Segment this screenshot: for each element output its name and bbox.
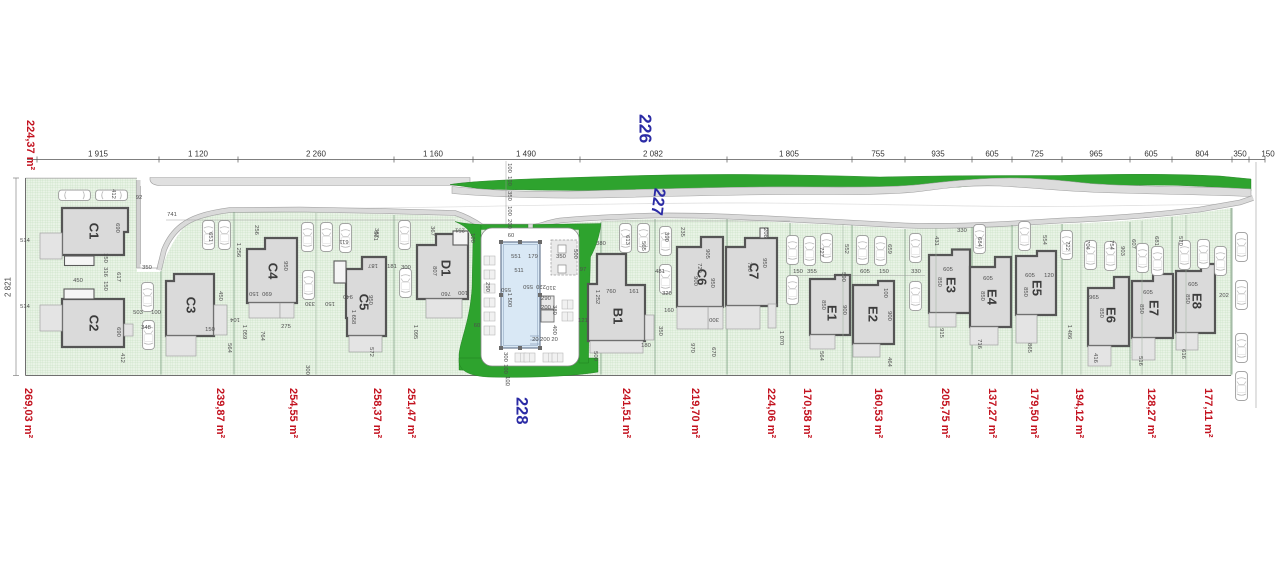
svg-text:570: 570 bbox=[1177, 236, 1183, 246]
svg-text:100: 100 bbox=[506, 206, 512, 216]
svg-text:552: 552 bbox=[843, 244, 849, 254]
svg-text:224,37 m²: 224,37 m² bbox=[24, 120, 36, 170]
svg-text:804: 804 bbox=[1195, 150, 1209, 159]
svg-text:1 120: 1 120 bbox=[188, 150, 209, 159]
svg-text:590: 590 bbox=[840, 272, 846, 282]
svg-text:1 490: 1 490 bbox=[516, 150, 537, 159]
svg-text:205,75 m²: 205,75 m² bbox=[939, 388, 951, 438]
svg-text:1 486: 1 486 bbox=[1066, 325, 1072, 340]
svg-text:704: 704 bbox=[1084, 240, 1090, 250]
svg-text:514: 514 bbox=[20, 238, 30, 244]
svg-text:387: 387 bbox=[373, 228, 379, 238]
svg-text:605: 605 bbox=[985, 150, 999, 159]
svg-text:2 260: 2 260 bbox=[306, 150, 327, 159]
svg-text:300: 300 bbox=[304, 365, 310, 375]
svg-text:C1: C1 bbox=[87, 223, 102, 240]
svg-text:E6: E6 bbox=[1104, 307, 1119, 323]
svg-text:100: 100 bbox=[506, 176, 512, 186]
svg-text:511: 511 bbox=[514, 268, 523, 274]
svg-text:350: 350 bbox=[657, 326, 663, 336]
svg-text:670: 670 bbox=[710, 347, 716, 357]
svg-text:150: 150 bbox=[879, 269, 889, 275]
svg-text:380: 380 bbox=[551, 305, 557, 315]
svg-text:2 082: 2 082 bbox=[643, 150, 664, 159]
svg-text:690: 690 bbox=[114, 223, 120, 233]
svg-text:320: 320 bbox=[662, 291, 672, 297]
svg-text:500: 500 bbox=[592, 351, 598, 361]
svg-text:564: 564 bbox=[818, 351, 824, 361]
svg-text:400: 400 bbox=[551, 325, 557, 335]
svg-text:900: 900 bbox=[841, 305, 847, 315]
svg-text:150: 150 bbox=[102, 253, 108, 263]
svg-text:450: 450 bbox=[217, 291, 223, 301]
svg-text:228: 228 bbox=[513, 397, 531, 425]
svg-text:605: 605 bbox=[860, 269, 870, 275]
svg-text:720: 720 bbox=[746, 262, 752, 272]
svg-text:450: 450 bbox=[73, 278, 83, 284]
svg-text:121: 121 bbox=[578, 318, 588, 324]
svg-text:137,27 m²: 137,27 m² bbox=[986, 388, 998, 438]
svg-text:1 915: 1 915 bbox=[88, 150, 109, 159]
svg-text:850: 850 bbox=[1138, 304, 1144, 314]
svg-text:120: 120 bbox=[1044, 273, 1054, 279]
svg-text:565: 565 bbox=[640, 241, 646, 251]
svg-text:764: 764 bbox=[259, 331, 265, 341]
svg-text:514: 514 bbox=[20, 304, 30, 310]
svg-text:605: 605 bbox=[1144, 150, 1158, 159]
svg-text:190: 190 bbox=[469, 233, 475, 243]
svg-text:554: 554 bbox=[1041, 235, 1047, 245]
svg-text:181: 181 bbox=[387, 264, 397, 270]
svg-text:180: 180 bbox=[641, 343, 651, 349]
svg-text:290: 290 bbox=[484, 282, 490, 292]
svg-text:300: 300 bbox=[401, 265, 411, 271]
svg-text:235: 235 bbox=[679, 227, 685, 237]
svg-text:104: 104 bbox=[229, 316, 239, 322]
svg-text:607: 607 bbox=[1130, 239, 1136, 249]
svg-text:367: 367 bbox=[429, 226, 435, 236]
svg-text:970: 970 bbox=[689, 343, 695, 353]
svg-text:300: 300 bbox=[709, 316, 719, 322]
svg-text:850: 850 bbox=[936, 277, 942, 287]
svg-text:355: 355 bbox=[807, 269, 817, 275]
svg-text:256: 256 bbox=[253, 225, 259, 235]
svg-text:100: 100 bbox=[458, 289, 468, 295]
svg-text:258,37 m²: 258,37 m² bbox=[371, 388, 383, 438]
svg-text:251,47 m²: 251,47 m² bbox=[405, 388, 417, 438]
svg-text:290: 290 bbox=[541, 296, 551, 302]
svg-text:900: 900 bbox=[886, 311, 892, 321]
svg-text:B1: B1 bbox=[611, 308, 626, 325]
svg-text:C3: C3 bbox=[184, 297, 199, 314]
svg-text:727: 727 bbox=[818, 247, 824, 257]
svg-text:100: 100 bbox=[151, 310, 161, 316]
svg-text:605: 605 bbox=[1025, 273, 1035, 279]
svg-text:92: 92 bbox=[136, 195, 142, 201]
svg-text:100: 100 bbox=[504, 376, 510, 386]
svg-text:E3: E3 bbox=[944, 277, 959, 293]
svg-text:350: 350 bbox=[142, 265, 152, 271]
svg-text:C2: C2 bbox=[87, 315, 102, 332]
svg-text:416: 416 bbox=[1092, 353, 1098, 363]
svg-text:716: 716 bbox=[976, 339, 982, 349]
svg-text:2 821: 2 821 bbox=[4, 276, 13, 297]
svg-text:100: 100 bbox=[882, 288, 888, 298]
svg-text:220: 220 bbox=[536, 283, 546, 289]
svg-text:1 070: 1 070 bbox=[778, 331, 784, 346]
svg-text:611: 611 bbox=[339, 238, 348, 244]
svg-text:275: 275 bbox=[281, 324, 291, 330]
svg-text:965: 965 bbox=[1089, 150, 1103, 159]
svg-text:224,06 m²: 224,06 m² bbox=[765, 388, 777, 438]
svg-text:950: 950 bbox=[761, 258, 767, 268]
svg-text:150: 150 bbox=[102, 281, 108, 291]
svg-text:605: 605 bbox=[1143, 290, 1153, 296]
svg-text:950: 950 bbox=[709, 278, 715, 288]
svg-text:310: 310 bbox=[546, 284, 556, 290]
svg-text:330: 330 bbox=[305, 300, 315, 306]
svg-text:1 500: 1 500 bbox=[506, 293, 512, 308]
svg-text:850: 850 bbox=[1098, 308, 1104, 318]
svg-text:350: 350 bbox=[1233, 150, 1247, 159]
svg-text:965: 965 bbox=[1089, 295, 1099, 301]
svg-text:605: 605 bbox=[943, 267, 953, 273]
svg-text:330: 330 bbox=[911, 269, 921, 275]
svg-text:E8: E8 bbox=[1190, 293, 1205, 309]
svg-text:350: 350 bbox=[506, 191, 512, 201]
svg-text:226: 226 bbox=[635, 114, 655, 143]
svg-text:E4: E4 bbox=[985, 289, 1000, 306]
svg-text:850: 850 bbox=[1022, 287, 1028, 297]
svg-text:500: 500 bbox=[572, 249, 578, 259]
svg-text:616: 616 bbox=[1180, 349, 1186, 359]
svg-text:E7: E7 bbox=[1147, 300, 1162, 316]
svg-text:390: 390 bbox=[663, 232, 669, 242]
svg-text:1 256: 1 256 bbox=[235, 243, 241, 258]
svg-text:807: 807 bbox=[431, 266, 437, 276]
svg-text:150: 150 bbox=[793, 269, 803, 275]
svg-text:D1: D1 bbox=[439, 260, 454, 277]
svg-text:E2: E2 bbox=[866, 306, 881, 322]
svg-text:950: 950 bbox=[367, 295, 373, 305]
svg-text:160,53 m²: 160,53 m² bbox=[872, 388, 884, 438]
svg-text:179,50 m²: 179,50 m² bbox=[1028, 388, 1040, 438]
svg-text:659: 659 bbox=[886, 244, 892, 254]
svg-text:905: 905 bbox=[704, 249, 710, 259]
svg-text:202: 202 bbox=[1219, 293, 1229, 299]
svg-text:170,58 m²: 170,58 m² bbox=[801, 388, 813, 438]
svg-text:251: 251 bbox=[455, 227, 465, 233]
svg-text:551: 551 bbox=[511, 254, 521, 260]
svg-text:100: 100 bbox=[502, 364, 508, 374]
svg-text:760: 760 bbox=[441, 290, 451, 296]
svg-text:617: 617 bbox=[115, 272, 121, 282]
svg-text:97: 97 bbox=[580, 267, 586, 273]
svg-text:316: 316 bbox=[102, 267, 108, 277]
svg-text:572: 572 bbox=[368, 347, 374, 357]
svg-text:350: 350 bbox=[556, 254, 566, 260]
svg-text:300: 300 bbox=[502, 352, 508, 362]
svg-text:1 160: 1 160 bbox=[423, 150, 444, 159]
svg-text:755: 755 bbox=[871, 150, 885, 159]
svg-text:380: 380 bbox=[596, 241, 606, 247]
svg-text:850: 850 bbox=[979, 291, 985, 301]
svg-text:690: 690 bbox=[115, 327, 121, 337]
svg-text:150: 150 bbox=[325, 300, 335, 306]
svg-text:850: 850 bbox=[1184, 294, 1190, 304]
svg-text:865: 865 bbox=[1026, 343, 1032, 353]
svg-text:412: 412 bbox=[110, 189, 116, 199]
svg-text:60: 60 bbox=[474, 323, 480, 329]
svg-text:208: 208 bbox=[762, 228, 768, 238]
svg-text:935: 935 bbox=[931, 150, 945, 159]
svg-text:725: 725 bbox=[1030, 150, 1044, 159]
svg-text:940: 940 bbox=[343, 293, 353, 299]
svg-text:60: 60 bbox=[508, 233, 514, 239]
svg-text:741: 741 bbox=[167, 212, 177, 218]
svg-text:1 095: 1 095 bbox=[412, 325, 418, 340]
svg-text:239,87 m²: 239,87 m² bbox=[214, 388, 226, 438]
svg-text:684: 684 bbox=[976, 237, 982, 247]
svg-text:150: 150 bbox=[249, 290, 259, 296]
svg-text:1 658: 1 658 bbox=[350, 310, 356, 325]
svg-text:431: 431 bbox=[933, 236, 939, 246]
svg-text:161: 161 bbox=[629, 289, 639, 295]
svg-text:128,27 m²: 128,27 m² bbox=[1145, 388, 1157, 438]
svg-text:100: 100 bbox=[506, 163, 512, 173]
svg-text:1 805: 1 805 bbox=[779, 150, 800, 159]
svg-text:613: 613 bbox=[624, 235, 630, 245]
svg-text:1 059: 1 059 bbox=[241, 325, 247, 340]
svg-text:481: 481 bbox=[655, 269, 665, 275]
svg-text:254,55 m²: 254,55 m² bbox=[287, 388, 299, 438]
svg-text:1 252: 1 252 bbox=[594, 290, 600, 305]
svg-text:605: 605 bbox=[983, 276, 993, 282]
svg-text:227: 227 bbox=[647, 187, 668, 217]
svg-text:900: 900 bbox=[692, 276, 698, 286]
svg-text:950: 950 bbox=[282, 261, 288, 271]
svg-text:177,11 m²: 177,11 m² bbox=[1202, 388, 1214, 438]
svg-text:651: 651 bbox=[207, 232, 213, 242]
svg-text:160: 160 bbox=[664, 308, 674, 314]
svg-text:760: 760 bbox=[606, 289, 616, 295]
svg-text:720: 720 bbox=[696, 263, 702, 273]
svg-text:200: 200 bbox=[541, 305, 551, 311]
svg-text:150: 150 bbox=[205, 327, 215, 333]
svg-text:903: 903 bbox=[1119, 246, 1125, 256]
svg-text:150: 150 bbox=[1261, 150, 1275, 159]
svg-text:C4: C4 bbox=[266, 263, 281, 280]
svg-text:179: 179 bbox=[528, 254, 538, 260]
svg-text:219,70 m²: 219,70 m² bbox=[689, 388, 701, 438]
svg-text:516: 516 bbox=[1137, 356, 1143, 366]
svg-text:690: 690 bbox=[262, 290, 272, 296]
svg-text:194,12 m²: 194,12 m² bbox=[1073, 388, 1085, 438]
svg-text:550: 550 bbox=[501, 286, 511, 292]
svg-text:503: 503 bbox=[133, 310, 143, 316]
svg-text:564: 564 bbox=[226, 343, 232, 353]
svg-text:20 200 20: 20 200 20 bbox=[532, 337, 558, 343]
svg-text:412: 412 bbox=[119, 353, 125, 363]
svg-text:681: 681 bbox=[1153, 236, 1159, 246]
svg-text:850: 850 bbox=[820, 300, 826, 310]
svg-text:550: 550 bbox=[523, 283, 533, 289]
svg-text:187: 187 bbox=[368, 262, 378, 268]
svg-text:754: 754 bbox=[1108, 240, 1114, 250]
svg-text:722: 722 bbox=[1064, 241, 1070, 251]
svg-text:241,51 m²: 241,51 m² bbox=[620, 388, 632, 438]
svg-text:330: 330 bbox=[957, 228, 967, 234]
svg-text:464: 464 bbox=[886, 357, 892, 367]
svg-text:915: 915 bbox=[938, 328, 944, 338]
svg-text:E5: E5 bbox=[1030, 280, 1045, 296]
svg-text:269,03 m²: 269,03 m² bbox=[22, 388, 34, 438]
svg-text:605: 605 bbox=[1188, 282, 1198, 288]
svg-text:348: 348 bbox=[141, 325, 151, 331]
svg-text:200: 200 bbox=[506, 219, 512, 229]
